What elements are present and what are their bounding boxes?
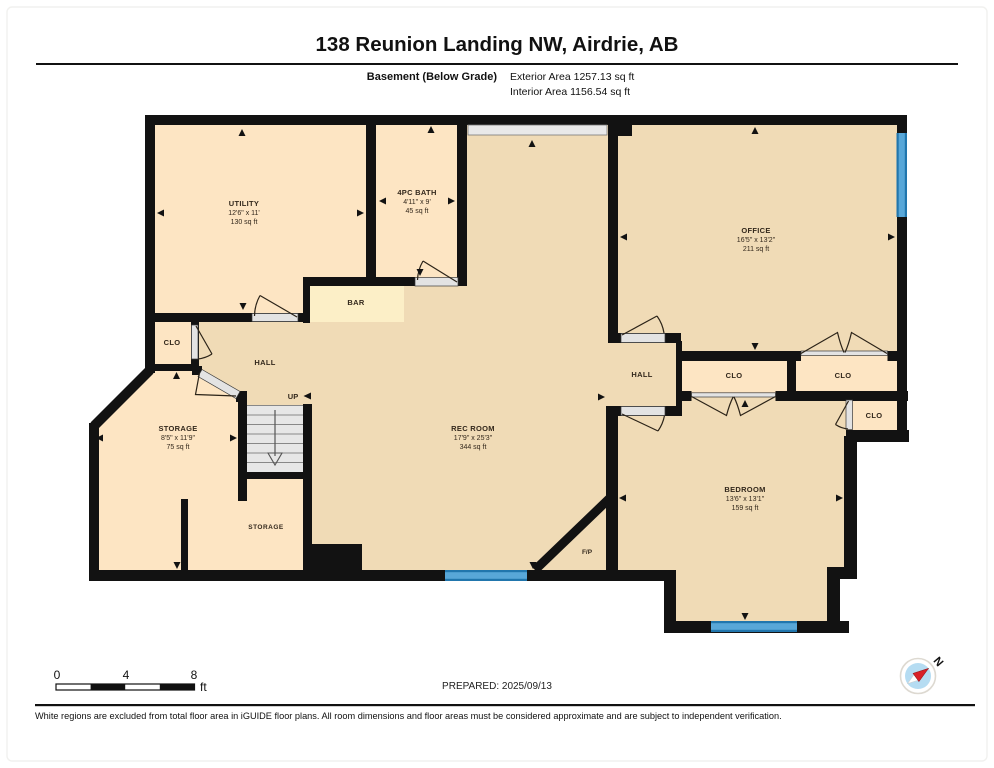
svg-text:STORAGE: STORAGE [158, 424, 197, 433]
svg-text:Basement (Below Grade): Basement (Below Grade) [367, 71, 498, 83]
svg-text:HALL: HALL [254, 358, 275, 367]
svg-text:138 Reunion Landing NW, Airdri: 138 Reunion Landing NW, Airdrie, AB [316, 33, 679, 56]
svg-text:45 sq ft: 45 sq ft [406, 208, 429, 215]
svg-text:CLO: CLO [866, 411, 883, 420]
svg-text:ft: ft [200, 680, 207, 694]
svg-text:0: 0 [54, 668, 61, 682]
svg-text:REC ROOM: REC ROOM [451, 424, 495, 433]
svg-text:BAR: BAR [347, 298, 364, 307]
svg-text:4'11" x 9': 4'11" x 9' [403, 199, 431, 206]
svg-text:Exterior Area 1257.13 sq ft: Exterior Area 1257.13 sq ft [510, 71, 634, 83]
svg-text:17'9" x 25'3": 17'9" x 25'3" [454, 435, 493, 442]
svg-text:STORAGE: STORAGE [248, 524, 284, 531]
svg-text:75 sq ft: 75 sq ft [167, 444, 190, 451]
svg-text:HALL: HALL [631, 370, 652, 379]
svg-text:4PC BATH: 4PC BATH [397, 188, 436, 197]
svg-text:16'5" x 13'2": 16'5" x 13'2" [737, 237, 776, 244]
svg-text:4: 4 [123, 668, 130, 682]
svg-text:Interior Area 1156.54 sq ft: Interior Area 1156.54 sq ft [510, 86, 630, 98]
svg-text:UTILITY: UTILITY [229, 199, 259, 208]
svg-text:UP: UP [288, 392, 298, 401]
svg-text:PREPARED: 2025/09/13: PREPARED: 2025/09/13 [442, 681, 552, 692]
svg-text:344 sq ft: 344 sq ft [460, 444, 487, 451]
svg-text:CLO: CLO [835, 371, 852, 380]
svg-text:12'6" x 11': 12'6" x 11' [228, 210, 260, 217]
svg-text:130 sq ft: 130 sq ft [231, 219, 258, 226]
svg-text:211 sq ft: 211 sq ft [743, 246, 769, 253]
svg-text:159 sq ft: 159 sq ft [732, 505, 759, 512]
svg-text:CLO: CLO [164, 338, 181, 347]
svg-text:F/P: F/P [582, 549, 593, 556]
svg-text:BEDROOM: BEDROOM [724, 485, 765, 494]
svg-text:CLO: CLO [726, 371, 743, 380]
svg-text:13'6" x 13'1": 13'6" x 13'1" [726, 496, 765, 503]
svg-text:OFFICE: OFFICE [741, 226, 770, 235]
svg-text:White regions are excluded fro: White regions are excluded from total fl… [35, 711, 782, 721]
svg-text:8: 8 [191, 668, 198, 682]
svg-text:8'5" x 11'9": 8'5" x 11'9" [161, 435, 195, 442]
